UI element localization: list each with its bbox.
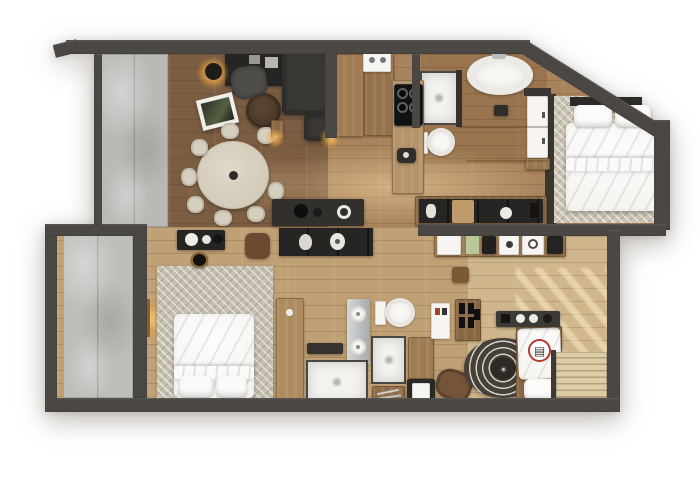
wall-right-lower (607, 230, 620, 410)
display-dot (506, 241, 513, 248)
plate-ring (337, 205, 351, 219)
wall-right-upper (654, 120, 670, 230)
dining-chair-2 (221, 123, 239, 139)
wall-living-kitchen (325, 40, 337, 138)
wall-top (66, 40, 530, 54)
bed-tr-pillow-left (574, 105, 612, 127)
toilet-bottom-bowl (385, 298, 415, 327)
wall-mid-right (418, 224, 666, 236)
wall-kitchen-bath (412, 54, 420, 128)
bath-cabinet-mid (408, 337, 434, 379)
display-box-white-1 (437, 235, 461, 255)
floor-step-line-2 (466, 160, 548, 162)
bottle-1 (459, 303, 465, 314)
kitchen-tall-cabinet (334, 54, 364, 137)
bed-tr-fold-band (566, 158, 658, 171)
staircase-steps (556, 352, 607, 398)
wall-bottom (45, 398, 620, 412)
duvet-red-emblem (528, 339, 551, 362)
shelf-knob-1 (501, 314, 510, 323)
display-box-green (466, 236, 479, 254)
console-lower (279, 228, 373, 256)
wall-mid-left (45, 224, 147, 236)
dining-chair-5 (187, 196, 204, 213)
desk-item-1 (249, 55, 260, 64)
burner-3 (397, 102, 408, 113)
wall-bedroom-bl (133, 224, 147, 398)
shelf-knob-dark (213, 234, 223, 244)
console-north-cubbies (419, 199, 543, 223)
floor-bowl (191, 252, 208, 268)
dining-table (197, 141, 269, 209)
floor-step-line-1 (458, 126, 548, 128)
shelf-knob-4 (543, 314, 552, 323)
dining-chair-6 (214, 210, 232, 226)
kettle (294, 204, 308, 218)
burner-1 (397, 88, 408, 99)
dining-chair-3 (191, 139, 208, 156)
bottle-3 (459, 317, 465, 328)
shelf-knob-2 (516, 314, 525, 323)
island-faucet (403, 152, 409, 158)
shower-vertical (371, 336, 406, 384)
cutting-board (452, 200, 474, 223)
white-jug (299, 234, 312, 250)
wall-shelf-bl (307, 343, 343, 354)
post-candle-glow (266, 128, 284, 148)
sofa (282, 49, 330, 115)
concrete-panel-top (101, 54, 168, 227)
shower-top (420, 71, 458, 125)
floor-vent (494, 105, 508, 116)
vanity-sink-2 (350, 339, 366, 355)
toiletry-cabinet (431, 303, 450, 339)
floor-plan-stage (0, 0, 700, 500)
vanity-sink-1 (350, 306, 366, 322)
rug-center-dot (500, 366, 507, 373)
shower-top-frame (456, 70, 462, 127)
leather-ottoman (245, 233, 270, 259)
wall-left-lower (45, 224, 57, 412)
table-lamp (205, 63, 222, 80)
display-box-dark-1 (482, 236, 496, 254)
dining-chair-7 (247, 206, 265, 222)
dining-chair-8 (268, 182, 284, 200)
bed-bl-pillow-right (216, 376, 247, 397)
display-ring (528, 239, 538, 249)
desk-item-2 (265, 57, 278, 68)
shelf-plate-small (202, 235, 211, 244)
sink-knob-2 (380, 57, 386, 63)
shelf-knob-3 (529, 314, 538, 323)
apartment-floor-plan (0, 0, 700, 500)
dining-chair-4 (181, 168, 197, 186)
cup-stack (313, 208, 322, 217)
bench-dot (286, 309, 293, 316)
shelf-plate-large (185, 233, 198, 246)
sink-knob-1 (369, 57, 375, 63)
toiletry-red (435, 308, 440, 315)
concrete-panel-bottom (63, 228, 133, 398)
north-cup (500, 207, 512, 219)
toiletry-dark (442, 308, 447, 315)
wall-left-upper (94, 54, 102, 225)
toilet-top-bowl (427, 128, 455, 156)
north-jug (426, 204, 436, 218)
dresser-handle-2 (542, 138, 545, 144)
bed-bl-pillow-left (179, 376, 213, 397)
display-box-dark-2 (547, 236, 563, 254)
dresser-top-stub (524, 88, 551, 96)
teapot-dot (335, 239, 340, 244)
small-wood-box (452, 267, 469, 283)
bottle-5 (474, 309, 480, 320)
wall-top-left-tip (53, 39, 79, 57)
dresser-handle-1 (542, 112, 545, 118)
north-bottle (530, 203, 538, 218)
